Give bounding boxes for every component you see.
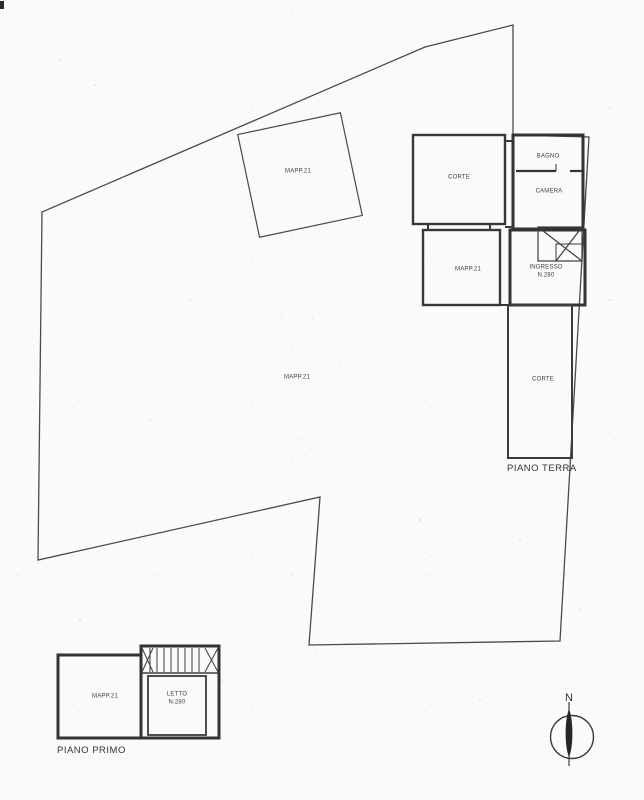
bagno-label: BAGNO	[537, 154, 560, 161]
court-right-label: CORTE	[532, 377, 554, 384]
first-floor-outline	[58, 646, 219, 738]
ingresso-label: INGRESSO	[529, 265, 562, 272]
letto-num-label: N.280	[168, 700, 185, 707]
letto-label: LETTO	[167, 692, 187, 699]
cadastral-floor-plan: N MAPP.21 CORTE BAGNO CAMERA MAPP.21 ING…	[0, 0, 644, 800]
piano-terra-title: PIANO TERRA	[507, 464, 577, 474]
mapp-ground-label: MAPP.21	[455, 267, 481, 274]
north-compass-icon: N	[551, 692, 594, 766]
scan-ghost-arcs	[281, 308, 316, 662]
mapp-first-label: MAPP.21	[92, 694, 118, 701]
ingresso-num-label: N.280	[537, 273, 554, 280]
annex-square-label: MAPP.21	[285, 169, 311, 176]
scan-artifact	[0, 1, 4, 9]
camera-label: CAMERA	[536, 189, 563, 196]
staircase-first-icon	[141, 648, 219, 673]
staircase-ground-icon	[538, 227, 582, 261]
bagno-camera-building	[513, 135, 583, 229]
piano-primo-title: PIANO PRIMO	[57, 746, 126, 756]
plan-linework: N	[0, 0, 644, 800]
mapp-parcel-label: MAPP.21	[284, 375, 310, 382]
scan-speckles	[39, 59, 616, 720]
compass-north-label: N	[565, 692, 573, 704]
court-upper-label: CORTE	[448, 175, 470, 182]
